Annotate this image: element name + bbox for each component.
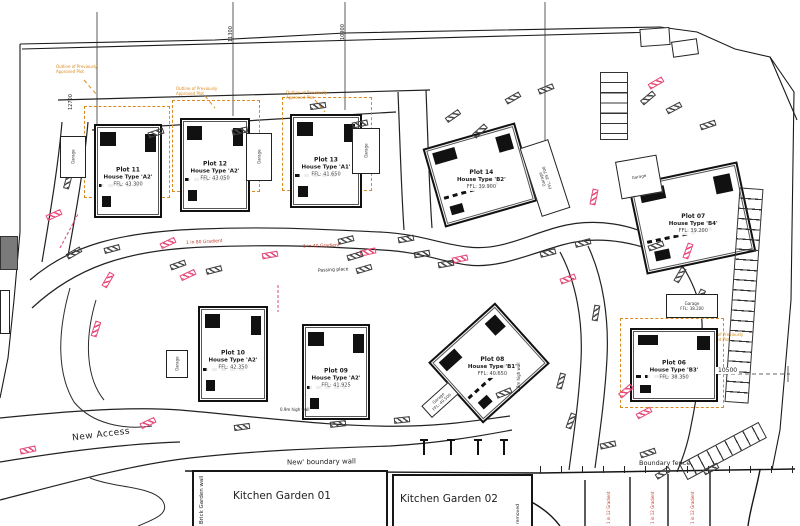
site-plan-canvas: Outline of Previously Approved Plot Outl… (0, 0, 800, 526)
gradient-label-vertical: 1 in 12 Gradient (690, 491, 695, 524)
plot-ffl: FFL: 38.350 (650, 374, 699, 381)
plot-name: Plot 09 (312, 368, 361, 376)
high-wall-label: 1.8m high wall (516, 363, 521, 392)
garage: Garage (166, 350, 188, 378)
approved-note-line2: Approved Plot (176, 91, 217, 96)
approved-note-plot13: Outline of Previously Approved Plot (286, 90, 327, 101)
plot-name: Plot 07 (669, 213, 718, 221)
fence-post (450, 440, 452, 455)
plot-ffl: FFL: 43.300 (104, 182, 153, 189)
house-detail (640, 385, 652, 393)
fence-post (503, 440, 505, 455)
house-detail (450, 203, 465, 216)
plot-house-type: House Type 'A2' (191, 168, 240, 175)
house-detail (654, 248, 671, 261)
house-detail (477, 395, 492, 410)
low-wall-label: 0.9m high wall (280, 407, 309, 412)
plot-ffl: FFL: 40.650 (468, 371, 517, 378)
garage: Garage (60, 136, 86, 178)
plot-name: Plot 12 (191, 161, 240, 169)
plot-label-14: Plot 14 House Type 'B2' FFL: 39.900 (455, 169, 508, 192)
kitchen-garden-02-label: Kitchen Garden 02 (400, 493, 498, 505)
plot-name: Plot 06 (650, 359, 699, 367)
dimension-10500: 10500 (716, 367, 739, 374)
plot-label-10: Plot 10 House Type 'A2' FFL: 42.350 (207, 349, 260, 372)
house-detail (206, 380, 215, 391)
house-detail (298, 186, 308, 197)
fence-post (477, 440, 479, 455)
boundary-fence-label: Boundary fence (639, 459, 690, 467)
landscape-lines (61, 288, 165, 526)
house-detail (188, 190, 197, 201)
garage-label: Garage (70, 150, 75, 165)
dimension-10900: 10900 (340, 24, 346, 40)
garage: GarageFFL: 38.200 (666, 294, 718, 318)
approved-note-plot12: Outline of Previously Approved Plot (176, 86, 217, 97)
plot-house-type: House Type 'A2' (312, 376, 361, 383)
brick-garden-wall-label: Brick Garden wall (199, 476, 205, 524)
garage-label: Garage (363, 144, 368, 159)
plot-label-08: Plot 08 House Type 'B1' FFL: 40.650 (466, 355, 519, 378)
plot-house-type: House Type 'A2' (104, 174, 153, 181)
plot-label-12: Plot 12 House Type 'A2' FFL: 43.050 (189, 160, 242, 183)
plot-ffl: FFL: 43.050 (191, 176, 240, 183)
plot-ffl: FFL: 41.650 (302, 172, 351, 179)
house-plot-06: Plot 06 House Type 'B3' FFL: 38.350 (630, 328, 718, 402)
plot-label-09: Plot 09 House Type 'A2' FFL: 41.925 (310, 367, 363, 390)
house-detail (102, 196, 111, 207)
house-plot-10: Plot 10 House Type 'A2' FFL: 42.350 (198, 306, 268, 402)
plot-name: Plot 11 (104, 167, 153, 175)
existing-building (0, 236, 18, 270)
garage-label: GarageFFL: 38.200 (680, 301, 703, 312)
garage-label: Garage (631, 173, 646, 181)
approved-note-line2: Approved Plot (286, 95, 327, 100)
gradient-label-vertical: 1 in 12 Gradient (606, 491, 611, 524)
plot-label-11: Plot 11 House Type 'A2' FFL: 43.300 (102, 166, 155, 189)
plot-name: Plot 10 (209, 350, 258, 358)
kitchen-garden-01-label: Kitchen Garden 01 (233, 490, 331, 502)
approved-note-line2: Approved Plot (56, 69, 97, 74)
garage: Garage (246, 133, 272, 181)
house-plot-09: Plot 09 House Type 'A2' FFL: 41.925 (302, 324, 370, 420)
plot-ffl: FFL: 39.200 (669, 228, 718, 235)
fence-post (423, 440, 425, 455)
plot-label-13: Plot 13 House Type 'A1' FFL: 41.650 (300, 156, 353, 179)
dimension-11300: 11300 (228, 26, 234, 42)
approved-note-plot11: Outline of Previously Approved Plot (56, 64, 97, 75)
removed-label: removed (516, 504, 521, 524)
gradient-label-vertical: 1 in 12 Gradient (650, 491, 655, 524)
boundary-wall-label: New' boundary wall (287, 457, 356, 466)
plot-house-type: House Type 'A1' (302, 164, 351, 171)
garage: Garage (615, 155, 663, 200)
house-plot-11: Plot 11 House Type 'A2' FFL: 43.300 (94, 124, 162, 218)
garage-label: GarageFFL: 39.700 (536, 165, 554, 191)
plot-house-type: House Type 'A2' (209, 358, 258, 365)
garage (639, 27, 670, 47)
stepped-path (600, 72, 628, 140)
plot-label-06: Plot 06 House Type 'B3' FFL: 38.350 (648, 358, 701, 381)
garage-label: Garage (174, 357, 179, 372)
plot-name: Plot 13 (302, 157, 351, 165)
house-detail (310, 398, 319, 409)
red-dashed-lines (60, 214, 278, 312)
garage: Garage (352, 128, 380, 174)
plot-ffl: FFL: 39.900 (457, 184, 506, 191)
plot-house-type: House Type 'B3' (650, 367, 699, 374)
plot-label-07: Plot 07 House Type 'B4' FFL: 39.200 (667, 212, 720, 235)
dimension-12700: 12700 (68, 94, 74, 110)
plot-ffl: FFL: 42.350 (209, 365, 258, 372)
plot-ffl: FFL: 41.925 (312, 383, 361, 390)
outbuilding (0, 290, 10, 334)
garage-label: Garage (256, 150, 261, 165)
